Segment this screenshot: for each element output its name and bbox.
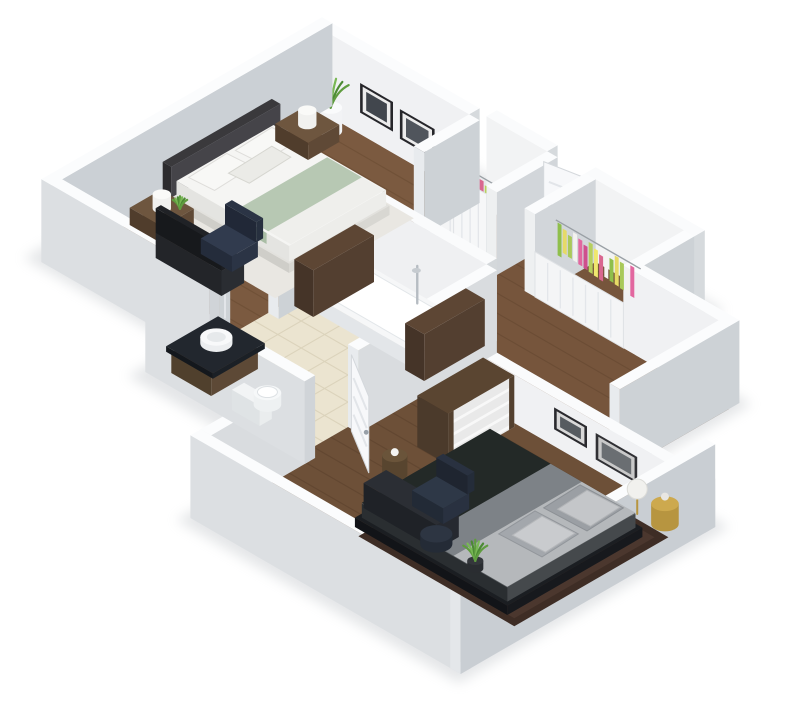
bedroom2-gold-side-table [651,496,679,531]
globe-lamp [627,479,647,499]
bedroom1-lamp-1 [298,105,316,129]
toilet-seat [257,387,277,398]
vanity-sink-bowl [207,332,226,342]
scene-root [24,17,783,683]
shower-head [412,268,421,273]
bedroom2-ottoman [420,525,452,552]
bedroom2-table-decor [661,493,669,501]
floorplan-canvas [0,0,800,720]
shelf-side-strip-north [509,376,514,431]
floorplan-3d-render [0,0,800,720]
side-table-decor [391,448,399,456]
